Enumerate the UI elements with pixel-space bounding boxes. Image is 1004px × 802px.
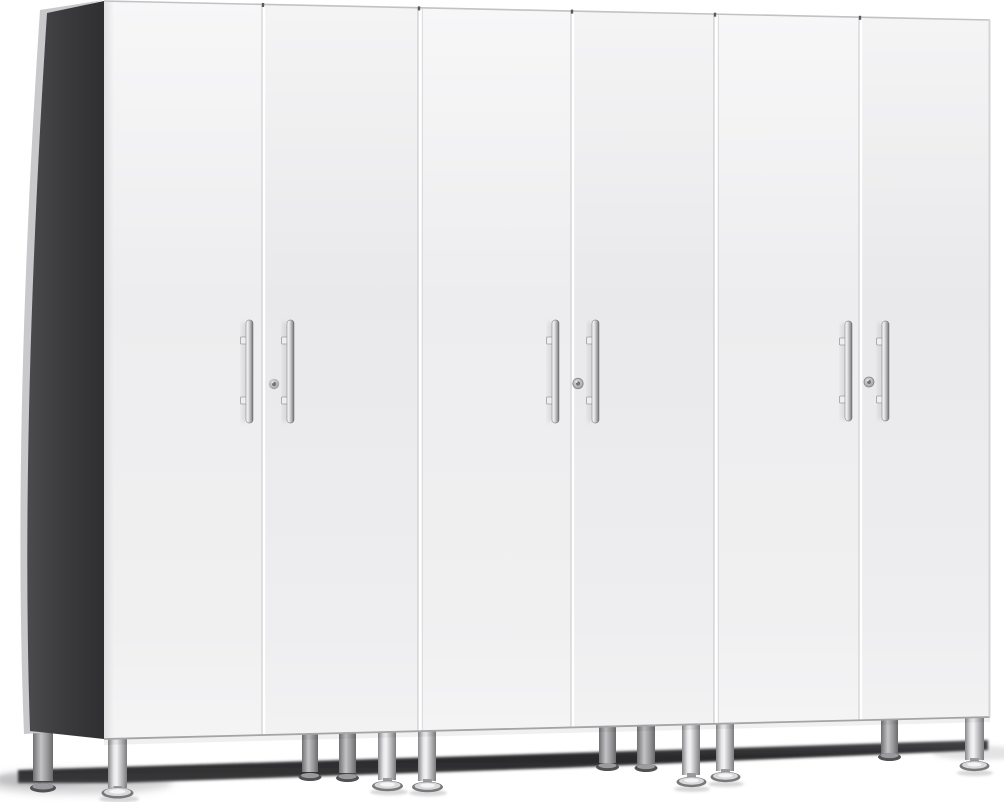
door-handle-left (845, 321, 852, 421)
door-lock (864, 377, 874, 387)
leg-back-4 (596, 727, 619, 771)
product-photo (0, 0, 1004, 802)
door-handle-left (246, 320, 253, 423)
product-image: 3-Piece White Tall Garage Cabinet Set (0, 0, 1004, 802)
front-left-corner-shade (104, 1, 114, 739)
door-3-left (715, 14, 860, 724)
door-handle-right (882, 321, 889, 421)
door-lock (573, 378, 583, 388)
door-lock (269, 379, 279, 389)
door-handle-left (552, 320, 559, 423)
door-handle-right (592, 320, 599, 423)
cabinet-front (104, 1, 990, 745)
door-1-left (104, 1, 263, 739)
leg-back-6 (878, 720, 901, 761)
door-handle-right (287, 320, 294, 423)
